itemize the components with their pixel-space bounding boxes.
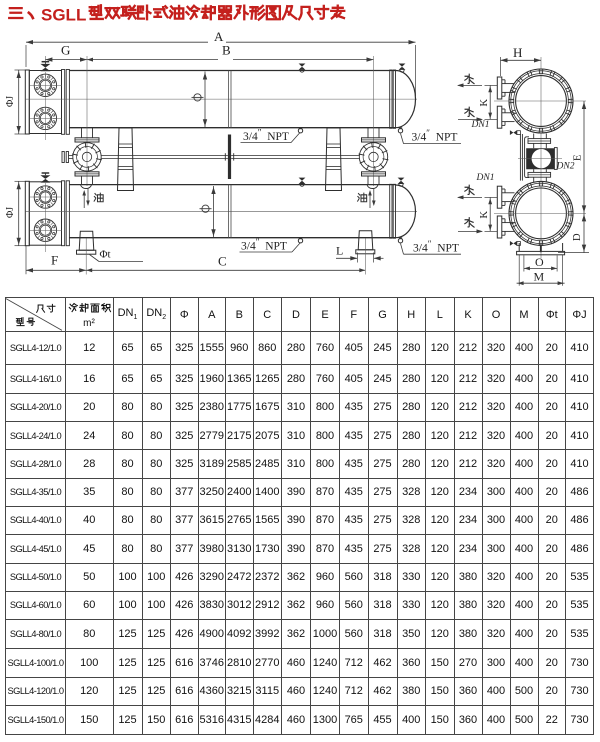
svg-text:M: M (534, 270, 545, 284)
svg-text:3/4″ NPT: 3/4″ NPT (243, 128, 289, 144)
svg-text:E: E (573, 155, 584, 161)
svg-text:DN2: DN2 (556, 162, 575, 172)
svg-text:ΦJ: ΦJ (5, 96, 16, 107)
svg-text:3/4″ NPT: 3/4″ NPT (241, 237, 287, 253)
svg-text:ΦJ: ΦJ (5, 207, 16, 218)
svg-text:F: F (51, 253, 58, 268)
svg-text:B: B (222, 43, 231, 58)
svg-text:L: L (336, 244, 343, 258)
svg-text:DN1: DN1 (476, 173, 495, 183)
svg-text:C: C (218, 254, 227, 269)
svg-text:DN1: DN1 (471, 120, 490, 130)
svg-text:D: D (572, 233, 583, 241)
svg-text:O: O (535, 255, 544, 269)
svg-text:3/4″ NPT: 3/4″ NPT (413, 239, 459, 255)
svg-text:Φt: Φt (100, 249, 111, 261)
svg-text:K: K (479, 211, 490, 219)
svg-text:3/4″ NPT: 3/4″ NPT (412, 128, 458, 144)
svg-text:m²: m² (83, 318, 95, 329)
svg-text:G: G (61, 43, 70, 58)
svg-text:K: K (479, 99, 490, 107)
svg-text:H: H (513, 45, 522, 60)
